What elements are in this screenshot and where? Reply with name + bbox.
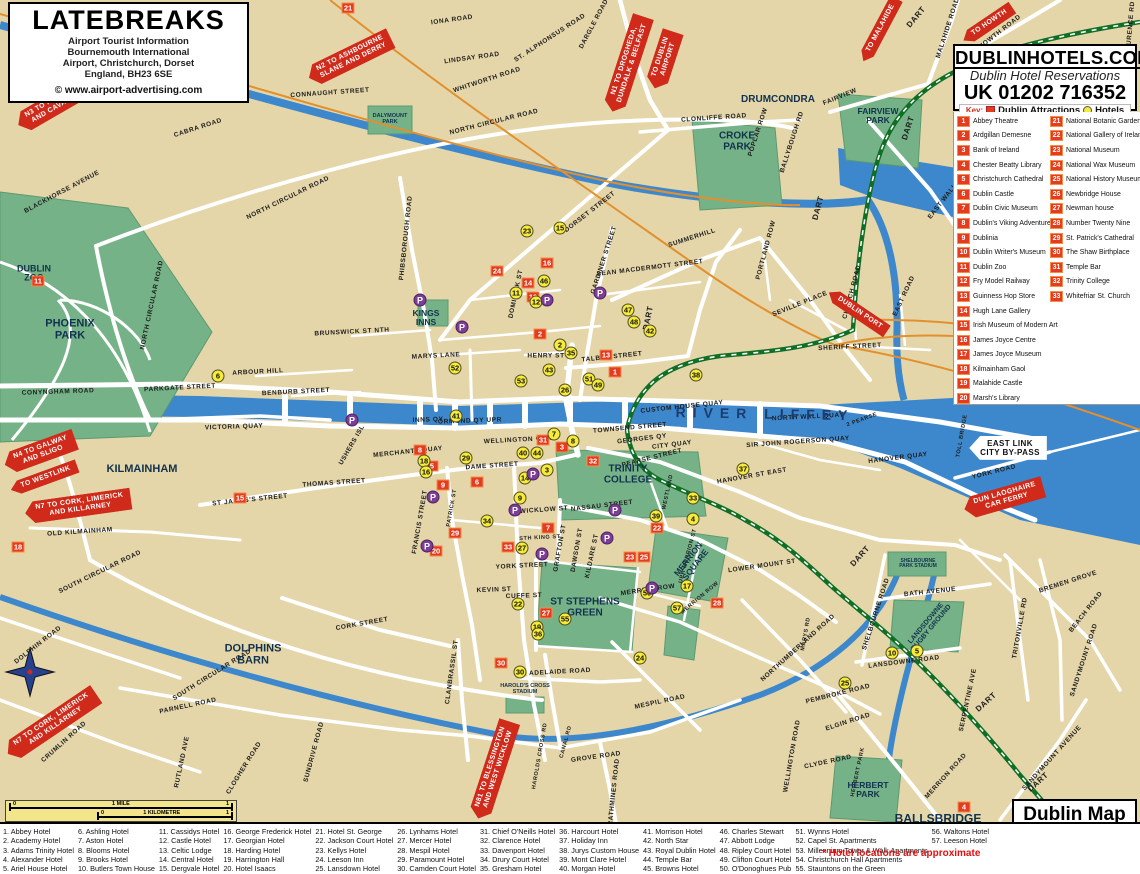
attraction-name: Hugh Lane Gallery [973,308,1030,315]
attraction-number: 25 [1050,174,1063,185]
legend-item: 2Ardgillan Demesne [957,129,1050,144]
parking-icon: P [346,414,359,427]
hotel-list-item: 49. Clifton Court Hotel [720,855,792,864]
legend-item: 12Fry Model Railway [957,275,1050,290]
attraction-name: Kilmainham Gaol [973,366,1025,373]
street-label: INNS QY [412,416,443,424]
hotel-list-item: 3. Adams Trinity Hotel [3,846,74,855]
area-label: FAIRVIEW PARK [858,107,899,125]
attraction-number: 15 [957,320,970,331]
hotel-marker: 3 [541,464,554,477]
attraction-marker: 33 [502,542,515,553]
attraction-number: 19 [957,378,970,389]
legend-item: 5Christchurch Cathedral [957,172,1050,187]
legend-item: 23National Museum [1050,143,1140,158]
hotel-marker: 37 [737,463,750,476]
area-label: KILMAINHAM [107,464,178,476]
attraction-number: 30 [1050,247,1063,258]
hotel-list-item: 37. Holiday Inn [559,836,639,845]
hotel-marker: 38 [690,369,703,382]
hotel-list-item: 13. Celtic Lodge [159,846,219,855]
hotel-column: 6. Ashling Hotel7. Aston Hotel8. Blooms … [78,827,155,874]
area-label: KINGS INNS [413,309,440,327]
attractions-legend: 1Abbey Theatre2Ardgillan Demesne3Bank of… [953,112,1140,405]
hotel-marker: 22 [512,598,525,611]
attraction-name: Malahide Castle [973,380,1022,387]
attraction-number: 31 [1050,262,1063,273]
attraction-marker: 18 [12,542,25,553]
attraction-name: Dublin Writer's Museum [973,249,1046,256]
parking-icon: P [601,532,614,545]
parking-icon: P [456,321,469,334]
attraction-number: 22 [1050,130,1063,141]
legend-item: 1Abbey Theatre [957,114,1050,129]
attraction-number: 24 [1050,160,1063,171]
attraction-number: 6 [957,189,970,200]
legend-item: 6Dublin Castle [957,187,1050,202]
hotel-marker: 36 [532,628,545,641]
parking-icon: P [609,504,622,517]
parking-icon: P [594,287,607,300]
attraction-number: 4 [957,160,970,171]
hotel-column: 41. Morrison Hotel42. North Star43. Roya… [643,827,716,874]
hotel-marker: 29 [460,452,473,465]
legend-item: 18Kilmainham Gaol [957,362,1050,377]
hotel-list-item: 39. Mont Clare Hotel [559,855,639,864]
legend-column-2: 21National Botanic Gardens22National Gal… [1050,114,1140,404]
legend-item: 3Bank of Ireland [957,143,1050,158]
attraction-marker: 15 [234,493,247,504]
hotel-list-item: 15. Dergvale Hotel [159,864,219,873]
attraction-marker: 4 [958,802,971,813]
hotel-list-item: 42. North Star [643,836,716,845]
attraction-number: 14 [957,306,970,317]
hotel-list-item: 57. Leeson Hotel [932,836,989,845]
hotel-marker: 7 [548,428,561,441]
area-label: CROKE PARK [719,132,755,153]
attraction-name: National Botanic Gardens [1066,118,1140,125]
attraction-name: Number Twenty Nine [1066,220,1130,227]
hotel-list-item: 6. Ashling Hotel [78,827,155,836]
dublin-map-page: IONA ROADST. ALPHONSUS ROADDARGLE ROADLI… [0,0,1140,874]
attraction-name: James Joyce Centre [973,337,1036,344]
hotel-list-item: 21. Hotel St. George [315,827,393,836]
scale-mile: 0 1 MILE 1 [9,802,233,811]
legend-item: 25National History Museum [1050,172,1140,187]
attraction-number: 18 [957,364,970,375]
area-label: RIVER LIFFEY [675,405,854,423]
attraction-number: 7 [957,203,970,214]
area-label: DRUMCONDRA [741,95,815,106]
latebreaks-line4: England, BH23 6SE [10,69,247,80]
scale-bar: 0 1 MILE 1 0 1 KILOMETRE 1 [5,800,237,822]
hotel-marker: 48 [628,316,641,329]
hotel-marker: 17 [681,580,694,593]
attraction-name: Bank of Ireland [973,147,1019,154]
legend-item: 4Chester Beatty Library [957,158,1050,173]
street-label: KEVIN ST [476,586,511,594]
hotel-list-item: 28. Mespil Hotel [397,846,476,855]
hotel-list-item: 29. Paramount Hotel [397,855,476,864]
legend-item: 11Dublin Zoo [957,260,1050,275]
hotel-list-item: 24. Leeson Inn [315,855,393,864]
hotel-marker: 11 [510,287,523,300]
area-label: DALYMOUNT PARK [373,114,408,126]
parking-icon: P [646,582,659,595]
attraction-number: 29 [1050,233,1063,244]
attraction-number: 2 [957,130,970,141]
attraction-marker: 2 [534,329,547,340]
hotel-marker: 33 [687,492,700,505]
hotel-marker: 53 [515,375,528,388]
attraction-number: 3 [957,145,970,156]
hotel-list-item: 9. Brooks Hotel [78,855,155,864]
attraction-number: 16 [957,335,970,346]
hotel-marker: 49 [592,379,605,392]
attraction-name: Dublin's Viking Adventure [973,220,1051,227]
hotel-list-item: 43. Royal Dublin Hotel [643,846,716,855]
hotel-list-item: 25. Lansdown Hotel [315,864,393,873]
hotel-list-item: 23. Kellys Hotel [315,846,393,855]
area-label: PHOENIX PARK [45,318,95,341]
attraction-name: The Shaw Birthplace [1066,249,1130,256]
legend-item: 20Marsh's Library [957,391,1050,406]
legend-item: 22National Gallery of Ireland [1050,129,1140,144]
legend-item: 7Dublin Civic Museum [957,202,1050,217]
hotel-marker: 40 [517,447,530,460]
attraction-marker: 7 [542,523,555,534]
hotel-marker: 55 [559,613,572,626]
hotel-list-item: 36. Harcourt Hotel [559,827,639,836]
street-label: HENRY ST [527,353,564,360]
attraction-number: 27 [1050,203,1063,214]
legend-item: 28Number Twenty Nine [1050,216,1140,231]
attraction-marker: 13 [600,350,613,361]
attraction-number: 17 [957,349,970,360]
hotel-list-item: 26. Lynhams Hotel [397,827,476,836]
attraction-name: National Wax Museum [1066,162,1135,169]
hotel-list-item: 2. Academy Hotel [3,836,74,845]
hotel-marker: 27 [516,542,529,555]
attraction-name: James Joyce Museum [973,351,1042,358]
hotel-list-item: 33. Davenport Hotel [480,846,555,855]
attraction-marker: 28 [711,598,724,609]
attraction-number: 28 [1050,218,1063,229]
attraction-marker: 29 [449,528,462,539]
hotel-marker: 34 [481,515,494,528]
hotel-list-item: 41. Morrison Hotel [643,827,716,836]
latebreaks-box: LATEBREAKS Airport Tourist Information B… [8,2,249,103]
attraction-name: Whitefriar St. Church [1066,293,1130,300]
attraction-marker: 27 [540,608,553,619]
attraction-marker: 24 [491,266,504,277]
direction-sign: EAST LINK CITY BY-PASS [969,436,1047,460]
hotel-list-item: 18. Harding Hotel [223,846,311,855]
legend-column-1: 1Abbey Theatre2Ardgillan Demesne3Bank of… [957,114,1050,404]
hotel-marker: 15 [554,222,567,235]
hotel-column: 31. Chief O'Neills Hotel32. Clarence Hot… [480,827,555,874]
attraction-number: 21 [1050,116,1063,127]
attraction-marker: 14 [522,278,535,289]
hotel-marker: 10 [886,647,899,660]
scale-km: 0 1 KILOMETRE 1 [97,811,233,820]
hotel-marker: 43 [543,364,556,377]
hotel-list-item: 14. Central Hotel [159,855,219,864]
legend-item: 15Irish Museum of Modern Art [957,318,1050,333]
hotel-list-item: 51. Wynns Hotel [795,827,927,836]
hotel-marker: 16 [420,466,433,479]
attraction-name: Dublin Castle [973,191,1014,198]
attraction-name: National Gallery of Ireland [1066,132,1140,139]
legend-item: 8Dublin's Viking Adventure [957,216,1050,231]
attraction-marker: 21 [342,3,355,14]
hotel-column: 36. Harcourt Hotel37. Holiday Inn38. Jur… [559,827,639,874]
latebreaks-line3: Airport, Christchurch, Dorset [10,58,247,69]
attraction-number: 23 [1050,145,1063,156]
hotel-marker: 42 [644,325,657,338]
legend-item: 27Newman house [1050,202,1140,217]
hotel-column: 16. George Frederick Hotel17. Georgian H… [223,827,311,874]
attraction-number: 9 [957,233,970,244]
parking-icon: P [427,491,440,504]
hotel-list-item: 40. Morgan Hotel [559,864,639,873]
area-label: TRINITY COLLEGE [604,465,652,486]
area-label: HERBERT PARK [847,781,888,799]
attraction-name: Newbridge House [1066,191,1121,198]
latebreaks-line1: Airport Tourist Information [10,36,247,47]
legend-item: 9Dublinia [957,231,1050,246]
legend-item: 26Newbridge House [1050,187,1140,202]
hotel-list-item: 31. Chief O'Neills Hotel [480,827,555,836]
hotel-marker: 8 [567,435,580,448]
attraction-name: Marsh's Library [973,395,1020,402]
hotel-marker: 4 [687,513,700,526]
attraction-marker: 1 [609,367,622,378]
hotel-list-item: 20. Hotel Isaacs [223,864,311,873]
attraction-name: Fry Model Railway [973,278,1030,285]
street-label: CUFFE ST [506,592,543,600]
area-label: DOLPHINS BARN [225,643,282,666]
attraction-marker: 30 [495,658,508,669]
hotel-marker: 26 [559,384,572,397]
hotel-list-item: 46. Charles Stewart [720,827,792,836]
hotel-list-item: 7. Aston Hotel [78,836,155,845]
hotel-column: 26. Lynhams Hotel27. Mercer Hotel28. Mes… [397,827,476,874]
hotel-list-item: 27. Mercer Hotel [397,836,476,845]
attraction-marker: 25 [638,552,651,563]
hotel-list-item: 44. Temple Bar [643,855,716,864]
legend-item: 33Whitefriar St. Church [1050,289,1140,304]
hotel-marker: 25 [839,677,852,690]
hotel-column: 21. Hotel St. George22. Jackson Court Ho… [315,827,393,874]
attraction-name: Chester Beatty Library [973,162,1042,169]
attraction-marker: 32 [587,456,600,467]
attraction-name: National Museum [1066,147,1120,154]
hotel-list-item: 55. Stauntons on the Green [795,864,927,873]
site-title: DUBLINHOTELS.COM [955,48,1140,69]
hotel-marker: 24 [634,652,647,665]
attraction-number: 26 [1050,189,1063,200]
legend-item: 16James Joyce Centre [957,333,1050,348]
phone-number: UK 01202 716352 [955,83,1135,103]
hotel-marker: 6 [212,370,225,383]
hotel-list-item: 16. George Frederick Hotel [223,827,311,836]
hotel-marker: 39 [650,510,663,523]
attraction-name: Abbey Theatre [973,118,1018,125]
hotel-marker: 5 [911,645,924,658]
attraction-marker: 23 [624,552,637,563]
hotel-marker: 35 [565,347,578,360]
hotel-marker: 57 [671,602,684,615]
hotel-list-item: 50. O'Donoghues Pub [720,864,792,873]
attraction-marker: 22 [651,523,664,534]
attraction-marker: 6 [471,477,484,488]
hotel-list-item: 47. Abbott Lodge [720,836,792,845]
attraction-name: Guinness Hop Store [973,293,1035,300]
hotel-list-item: 17. Georgian Hotel [223,836,311,845]
area-label: HAROLD'S CROSS STADIUM [500,684,550,696]
attraction-name: Irish Museum of Modern Art [973,322,1058,329]
hotel-list-item: 4. Alexander Hotel [3,855,74,864]
hotel-marker: 44 [531,447,544,460]
attraction-number: 1 [957,116,970,127]
hotel-column: 11. Cassidys Hotel12. Castle Hotel13. Ce… [159,827,219,874]
legend-item: 29St. Patrick's Cathedral [1050,231,1140,246]
hotel-marker: 41 [450,410,463,423]
site-tagline: Dublin Hotel Reservations [955,69,1135,83]
attraction-number: 13 [957,291,970,302]
hotel-marker: 52 [449,362,462,375]
attraction-number: 10 [957,247,970,258]
attraction-number: 5 [957,174,970,185]
parking-icon: P [414,294,427,307]
hotel-column: 46. Charles Stewart47. Abbott Lodge48. R… [720,827,792,874]
attraction-number: 12 [957,276,970,287]
legend-item: 13Guinness Hop Store [957,289,1050,304]
hotel-footnote: * Hotel locations are approximate [822,848,980,859]
hotel-marker: 23 [521,225,534,238]
attraction-name: Dublinia [973,235,998,242]
hotel-list-item: 19. Harrington Hall [223,855,311,864]
attraction-name: St. Patrick's Cathedral [1066,235,1134,242]
attraction-name: Newman house [1066,205,1114,212]
hotel-list-item: 10. Butlers Town House [78,864,155,873]
hotel-column: 1. Abbey Hotel2. Academy Hotel3. Adams T… [3,827,74,874]
attraction-name: Trinity College [1066,278,1110,285]
parking-icon: P [536,548,549,561]
hotel-marker: 46 [538,275,551,288]
parking-icon: P [527,468,540,481]
hotel-list-item: 11. Cassidys Hotel [159,827,219,836]
attraction-number: 8 [957,218,970,229]
legend-item: 19Malahide Castle [957,377,1050,392]
latebreaks-title: LATEBREAKS [10,5,247,36]
attraction-name: Dublin Civic Museum [973,205,1038,212]
legend-item: 31Temple Bar [1050,260,1140,275]
legend-item: 17James Joyce Museum [957,348,1050,363]
hotel-list-item: 52. Capel St. Apartments [795,836,927,845]
legend-item: 14Hugh Lane Gallery [957,304,1050,319]
attraction-name: Dublin Zoo [973,264,1006,271]
hotel-marker: 30 [514,666,527,679]
hotel-list-item: 22. Jackson Court Hotel [315,836,393,845]
hotel-list-item: 35. Gresham Hotel [480,864,555,873]
hotel-list-item: 48. Ripley Court Hotel [720,846,792,855]
legend-item: 32Trinity College [1050,275,1140,290]
attraction-marker: 16 [541,258,554,269]
hotel-list-item: 56. Waltons Hotel [932,827,989,836]
latebreaks-line2: Bournemouth International [10,47,247,58]
hotel-list-item: 8. Blooms Hotel [78,846,155,855]
attraction-number: 11 [957,262,970,273]
area-label: SHELBOURNE PARK STADIUM [899,559,937,570]
legend-item: 30The Shaw Birthplace [1050,245,1140,260]
attraction-name: National History Museum [1066,176,1140,183]
hotel-list-item: 32. Clarence Hotel [480,836,555,845]
hotel-list-item: 30. Camden Court Hotel [397,864,476,873]
parking-icon: P [541,294,554,307]
attraction-marker: 9 [437,480,450,491]
advertising-url: © www.airport-advertising.com [10,85,247,96]
hotel-list-item: 5. Ariel House Hotel [3,864,74,873]
hotel-list-item: 45. Browns Hotel [643,864,716,873]
attraction-number: 20 [957,393,970,404]
hotel-list-item: 1. Abbey Hotel [3,827,74,836]
parking-icon: P [509,504,522,517]
attraction-name: Ardgillan Demesne [973,132,1031,139]
attraction-number: 32 [1050,276,1063,287]
attraction-name: Christchurch Cathedral [973,176,1043,183]
legend-item: 21National Botanic Gardens [1050,114,1140,129]
attraction-name: Temple Bar [1066,264,1101,271]
hotel-list-item: 34. Drury Court Hotel [480,855,555,864]
attraction-marker: 11 [32,276,45,287]
reservations-box: DUBLINHOTELS.COM Dublin Hotel Reservatio… [953,44,1137,111]
legend-item: 24National Wax Museum [1050,158,1140,173]
hotel-list-item: 38. Jurys Custom House [559,846,639,855]
parking-icon: P [421,540,434,553]
attraction-number: 33 [1050,291,1063,302]
legend-item: 10Dublin Writer's Museum [957,245,1050,260]
hotel-list-item: 12. Castle Hotel [159,836,219,845]
